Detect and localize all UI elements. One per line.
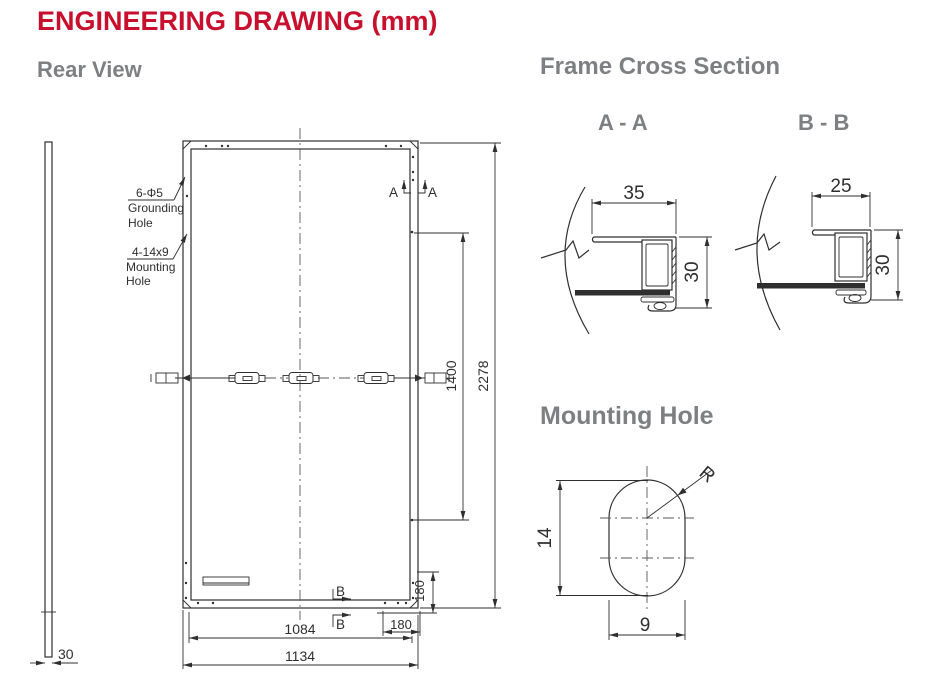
frame-rivets (185, 145, 414, 604)
cross-section-aa: 35 30 (541, 183, 712, 334)
dim-hole-span-width: 1084 (189, 612, 412, 643)
mounting-hole-detail: 14 9 R (535, 462, 719, 640)
dim-bb-height: 30 (873, 254, 894, 275)
dim-mh-height: 14 (535, 527, 556, 549)
dim-hole-span-height: 1400 (412, 233, 469, 520)
cross-section-bb: 25 30 (735, 176, 903, 330)
svg-text:A: A (389, 185, 398, 200)
mounting-spec: 4-14x9 (132, 245, 169, 259)
svg-text:1134: 1134 (285, 648, 315, 664)
nameplate-label (203, 577, 249, 585)
grounding-line1: Grounding (128, 201, 184, 215)
dim-bb-width: 25 (830, 176, 851, 197)
svg-text:180: 180 (390, 617, 412, 632)
grounding-hole-callout: 6-Φ5 Grounding Hole (128, 177, 185, 230)
connector-center (283, 373, 319, 384)
dim-overall-height: 2278 (420, 143, 501, 608)
connector-left-end (151, 373, 178, 383)
svg-text:B: B (336, 584, 345, 599)
svg-text:2278: 2278 (475, 360, 491, 391)
svg-text:B: B (336, 617, 345, 632)
svg-text:1084: 1084 (284, 621, 315, 637)
section-marker-a: A A (389, 180, 437, 200)
grounding-spec: 6-Φ5 (136, 186, 163, 200)
dim-aa-height: 30 (682, 261, 703, 282)
side-view: 30 (30, 142, 78, 663)
drawing-canvas: 30 (0, 0, 949, 693)
grounding-line2: Hole (128, 216, 153, 230)
mounting-line2: Hole (126, 274, 151, 288)
dim-edge-offset-v: 180 (377, 572, 439, 613)
rear-view-panel (183, 128, 418, 620)
dim-mh-radius: R (695, 462, 719, 487)
dim-aa-width: 35 (623, 183, 644, 204)
svg-text:A: A (428, 185, 437, 200)
svg-text:1400: 1400 (443, 360, 459, 391)
engineering-drawing-page: ENGINEERING DRAWING (mm) Rear View Frame… (0, 0, 949, 693)
dim-mh-width: 9 (640, 615, 651, 636)
mounting-hole-callout: 4-14x9 Mounting Hole (126, 234, 187, 288)
svg-text:180: 180 (412, 580, 427, 602)
mounting-line1: Mounting (126, 260, 175, 274)
dim-side-thickness: 30 (58, 646, 74, 662)
dim-edge-offset-h: 180 (383, 611, 420, 636)
